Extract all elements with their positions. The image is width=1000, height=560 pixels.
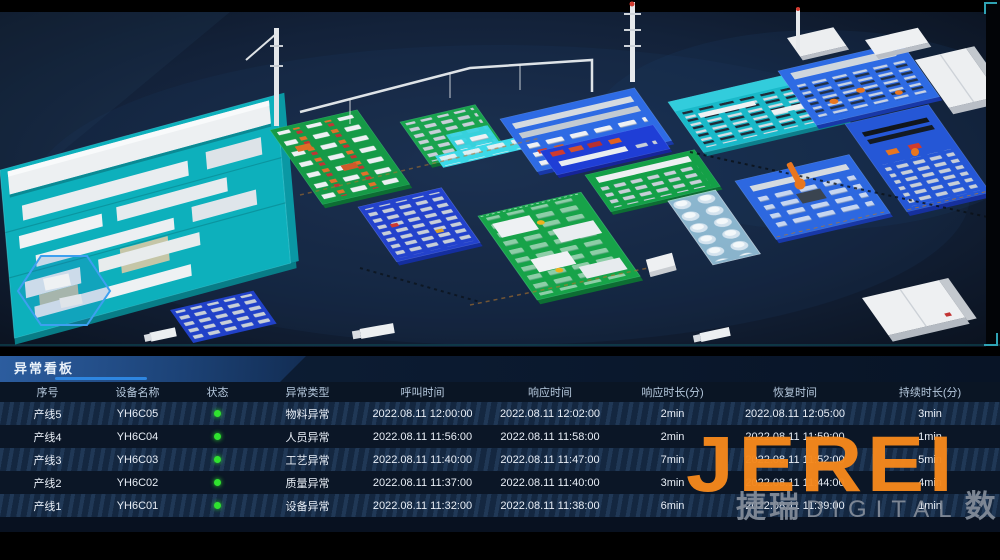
cell-status	[180, 477, 255, 489]
status-dot-icon	[214, 456, 221, 463]
cell-call: 2022.08.11 11:37:00	[360, 477, 485, 489]
cell-type: 工艺异常	[255, 452, 360, 468]
cell-call: 2022.08.11 12:00:00	[360, 408, 485, 420]
cell-status	[180, 454, 255, 466]
cell-type: 质量异常	[255, 475, 360, 491]
title-underline	[55, 377, 147, 380]
cell-resp_min: 7min	[615, 454, 730, 466]
cell-no: 产线2	[0, 475, 95, 491]
status-dot-icon	[214, 479, 221, 486]
cell-resp: 2022.08.11 11:58:00	[485, 431, 615, 443]
table-row: 产线2YH6C02质量异常2022.08.11 11:37:002022.08.…	[0, 471, 1000, 494]
table-row: 产线3YH6C03工艺异常2022.08.11 11:40:002022.08.…	[0, 448, 1000, 471]
cell-resp_min: 3min	[615, 477, 730, 489]
cell-recover: 2022.08.11 11:44:00	[730, 477, 860, 489]
cell-resp: 2022.08.11 11:38:00	[485, 500, 615, 512]
right-black-bar	[986, 0, 1000, 347]
cell-dur: 1min	[860, 431, 1000, 443]
column-header: 呼叫时间	[360, 384, 485, 400]
cell-resp: 2022.08.11 12:02:00	[485, 408, 615, 420]
cell-no: 产线4	[0, 429, 95, 445]
table-row: 产线1YH6C01设备异常2022.08.11 11:32:002022.08.…	[0, 494, 1000, 517]
status-dot-icon	[214, 433, 221, 440]
top-black-bar	[0, 0, 1000, 12]
status-dot-icon	[214, 410, 221, 417]
factory-3d-scene[interactable]	[0, 0, 1000, 347]
cell-dur: 1min	[860, 500, 1000, 512]
cell-type: 人员异常	[255, 429, 360, 445]
cell-recover: 2022.08.11 11:59:00	[730, 431, 860, 443]
column-header: 设备名称	[95, 384, 180, 400]
cell-device: YH6C04	[95, 431, 180, 443]
cell-dur: 4min	[860, 477, 1000, 489]
column-header: 序号	[0, 384, 95, 400]
cell-no: 产线3	[0, 452, 95, 468]
column-header: 异常类型	[255, 384, 360, 400]
cell-resp_min: 6min	[615, 500, 730, 512]
cell-call: 2022.08.11 11:56:00	[360, 431, 485, 443]
cell-recover: 2022.08.11 12:05:00	[730, 408, 860, 420]
column-header: 响应时长(分)	[615, 384, 730, 400]
column-header: 恢复时间	[730, 384, 860, 400]
column-header: 状态	[180, 384, 255, 400]
cell-resp_min: 2min	[615, 408, 730, 420]
table-row: 产线5YH6C05物料异常2022.08.11 12:00:002022.08.…	[0, 402, 1000, 425]
cell-device: YH6C05	[95, 408, 180, 420]
cell-resp: 2022.08.11 11:40:00	[485, 477, 615, 489]
table-row: 产线4YH6C04人员异常2022.08.11 11:56:002022.08.…	[0, 425, 1000, 448]
cell-no: 产线5	[0, 406, 95, 422]
status-dot-icon	[214, 502, 221, 509]
cell-device: YH6C02	[95, 477, 180, 489]
cell-status	[180, 500, 255, 512]
board-title-bar: 异常看板	[0, 356, 1000, 382]
cell-call: 2022.08.11 11:40:00	[360, 454, 485, 466]
cell-dur: 5min	[860, 454, 1000, 466]
cell-device: YH6C01	[95, 500, 180, 512]
cell-no: 产线1	[0, 498, 95, 514]
column-header: 响应时间	[485, 384, 615, 400]
mast-right	[796, 7, 800, 50]
cell-call: 2022.08.11 11:32:00	[360, 500, 485, 512]
exception-board: 异常看板 序号设备名称状态异常类型呼叫时间响应时间响应时长(分)恢复时间持续时长…	[0, 356, 1000, 532]
cell-type: 物料异常	[255, 406, 360, 422]
cell-status	[180, 431, 255, 443]
table-body: 产线5YH6C05物料异常2022.08.11 12:00:002022.08.…	[0, 402, 1000, 517]
cell-recover: 2022.08.11 11:39:00	[730, 500, 860, 512]
cell-resp: 2022.08.11 11:47:00	[485, 454, 615, 466]
cell-recover: 2022.08.11 11:52:00	[730, 454, 860, 466]
cell-status	[180, 408, 255, 420]
table-header-row: 序号设备名称状态异常类型呼叫时间响应时间响应时长(分)恢复时间持续时长(分)	[0, 382, 1000, 402]
cell-device: YH6C03	[95, 454, 180, 466]
column-header: 持续时长(分)	[860, 384, 1000, 400]
dashboard-root: 异常看板 序号设备名称状态异常类型呼叫时间响应时间响应时长(分)恢复时间持续时长…	[0, 0, 1000, 560]
cell-resp_min: 2min	[615, 431, 730, 443]
cell-dur: 3min	[860, 408, 1000, 420]
cell-type: 设备异常	[255, 498, 360, 514]
